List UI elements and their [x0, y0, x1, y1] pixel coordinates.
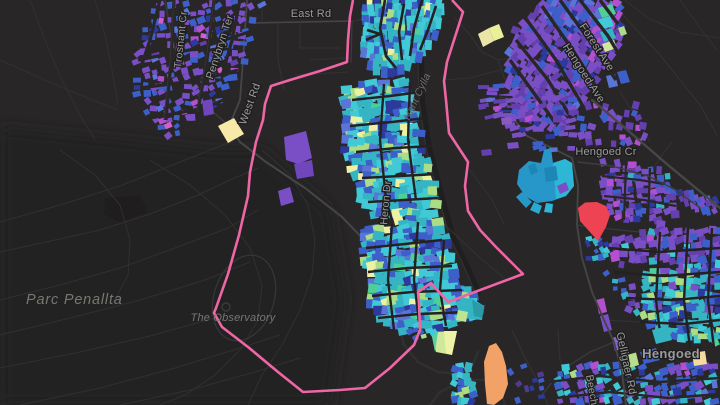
- svg-text:Hengoed Cr: Hengoed Cr: [575, 146, 636, 158]
- svg-text:Parc Penallta: Parc Penallta: [26, 292, 123, 308]
- svg-text:The Observatory: The Observatory: [191, 312, 277, 324]
- svg-text:East Rd: East Rd: [291, 8, 332, 20]
- svg-text:Hengoed: Hengoed: [642, 346, 700, 361]
